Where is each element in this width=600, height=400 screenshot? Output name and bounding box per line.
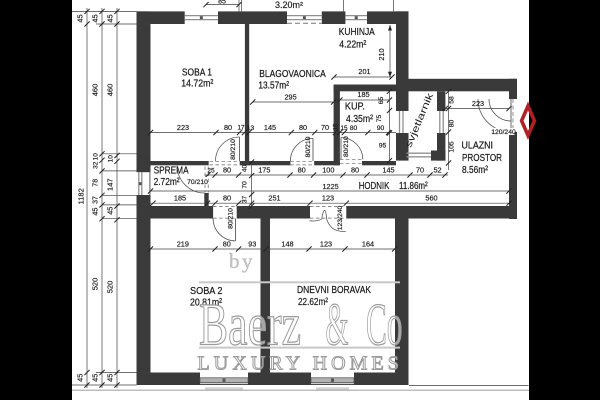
svg-text:10: 10: [93, 153, 100, 161]
svg-text:123: 123: [322, 194, 334, 203]
svg-text:45: 45: [91, 208, 100, 216]
svg-text:80: 80: [350, 125, 358, 132]
svg-text:ULAZNI: ULAZNI: [462, 141, 494, 152]
svg-text:80: 80: [298, 166, 306, 175]
svg-text:223: 223: [177, 123, 189, 132]
svg-text:560: 560: [425, 194, 437, 203]
svg-text:123/240: 123/240: [337, 206, 344, 231]
svg-text:40: 40: [241, 165, 248, 173]
svg-text:70: 70: [241, 181, 248, 189]
svg-text:90: 90: [377, 125, 385, 132]
svg-text:145: 145: [382, 166, 394, 175]
svg-text:22.62m²: 22.62m²: [298, 297, 329, 308]
svg-text:80/210: 80/210: [305, 136, 312, 157]
svg-text:25: 25: [207, 168, 215, 175]
svg-text:3.20m²: 3.20m²: [275, 0, 303, 10]
svg-text:201: 201: [358, 67, 370, 76]
svg-text:100: 100: [322, 166, 334, 175]
svg-text:75: 75: [376, 115, 383, 123]
svg-text:45: 45: [106, 374, 115, 382]
svg-text:37: 37: [93, 196, 100, 204]
svg-text:80: 80: [448, 120, 455, 128]
svg-text:52: 52: [433, 166, 441, 175]
svg-text:80: 80: [223, 194, 231, 203]
svg-text:70: 70: [416, 166, 424, 175]
svg-text:147: 147: [106, 178, 115, 191]
svg-text:LUXURY HOMES: LUXURY HOMES: [198, 354, 404, 375]
svg-text:520: 520: [91, 278, 100, 291]
svg-text:93: 93: [248, 239, 256, 248]
svg-text:80/210: 80/210: [343, 136, 350, 157]
svg-text:45: 45: [76, 374, 85, 382]
svg-text:45: 45: [91, 14, 100, 22]
svg-text:251: 251: [268, 194, 280, 203]
svg-text:185: 185: [357, 90, 369, 99]
svg-text:175: 175: [258, 166, 270, 175]
svg-text:460: 460: [106, 84, 115, 97]
svg-text:17: 17: [237, 125, 245, 132]
svg-text:185: 185: [174, 194, 186, 203]
svg-text:15: 15: [340, 125, 348, 132]
svg-text:10: 10: [108, 155, 115, 163]
svg-text:BLAGOVAONICA: BLAGOVAONICA: [259, 69, 326, 80]
svg-text:PROSTOR: PROSTOR: [462, 153, 502, 164]
svg-text:1225: 1225: [322, 182, 338, 191]
svg-text:45: 45: [76, 14, 85, 22]
svg-text:80/210: 80/210: [230, 139, 237, 160]
svg-text:32: 32: [93, 161, 100, 169]
svg-text:by: by: [229, 249, 255, 273]
svg-text:11.86m²: 11.86m²: [399, 181, 428, 192]
svg-text:8.56m²: 8.56m²: [462, 165, 489, 176]
svg-text:80: 80: [299, 123, 307, 132]
svg-text:223: 223: [472, 99, 484, 108]
svg-text:KUP.: KUP.: [345, 102, 365, 113]
svg-text:95: 95: [379, 142, 387, 149]
svg-text:45: 45: [91, 374, 100, 382]
svg-text:80: 80: [223, 166, 231, 175]
svg-text:164: 164: [362, 239, 374, 248]
svg-text:2.72m²: 2.72m²: [154, 177, 181, 188]
svg-text:4.35m²: 4.35m²: [346, 114, 374, 125]
svg-text:14.72m²: 14.72m²: [181, 79, 214, 90]
svg-text:80/210: 80/210: [228, 208, 235, 229]
svg-text:219: 219: [177, 239, 189, 248]
svg-text:145: 145: [264, 123, 276, 132]
svg-text:SOBA 1: SOBA 1: [182, 67, 212, 78]
svg-text:80: 80: [351, 166, 359, 175]
svg-text:13.57m²: 13.57m²: [258, 80, 289, 91]
svg-text:1182: 1182: [77, 188, 86, 204]
svg-text:37: 37: [241, 196, 248, 204]
svg-text:123: 123: [320, 239, 332, 248]
svg-text:58: 58: [448, 96, 455, 104]
svg-text:70: 70: [321, 123, 329, 132]
svg-text:460: 460: [91, 84, 100, 97]
svg-text:105: 105: [448, 141, 455, 153]
svg-text:HODNIK: HODNIK: [359, 181, 390, 192]
svg-text:148: 148: [281, 239, 293, 248]
svg-text:15: 15: [334, 123, 340, 130]
svg-text:120/240: 120/240: [491, 129, 516, 136]
svg-text:KUHINJA: KUHINJA: [339, 27, 375, 38]
svg-text:80: 80: [223, 239, 231, 248]
svg-text:520: 520: [106, 281, 115, 294]
svg-text:80: 80: [224, 123, 232, 132]
svg-text:45: 45: [106, 14, 115, 22]
svg-text:SPREMA: SPREMA: [154, 166, 189, 177]
svg-text:295: 295: [285, 93, 297, 102]
svg-text:210: 210: [377, 48, 386, 60]
svg-text:45: 45: [106, 207, 115, 215]
svg-text:4.22m²: 4.22m²: [339, 39, 367, 50]
svg-text:13: 13: [247, 125, 255, 132]
svg-text:65: 65: [378, 97, 385, 105]
svg-text:85: 85: [218, 0, 226, 6]
svg-text:78: 78: [93, 179, 100, 187]
svg-text:70/210: 70/210: [187, 179, 208, 186]
